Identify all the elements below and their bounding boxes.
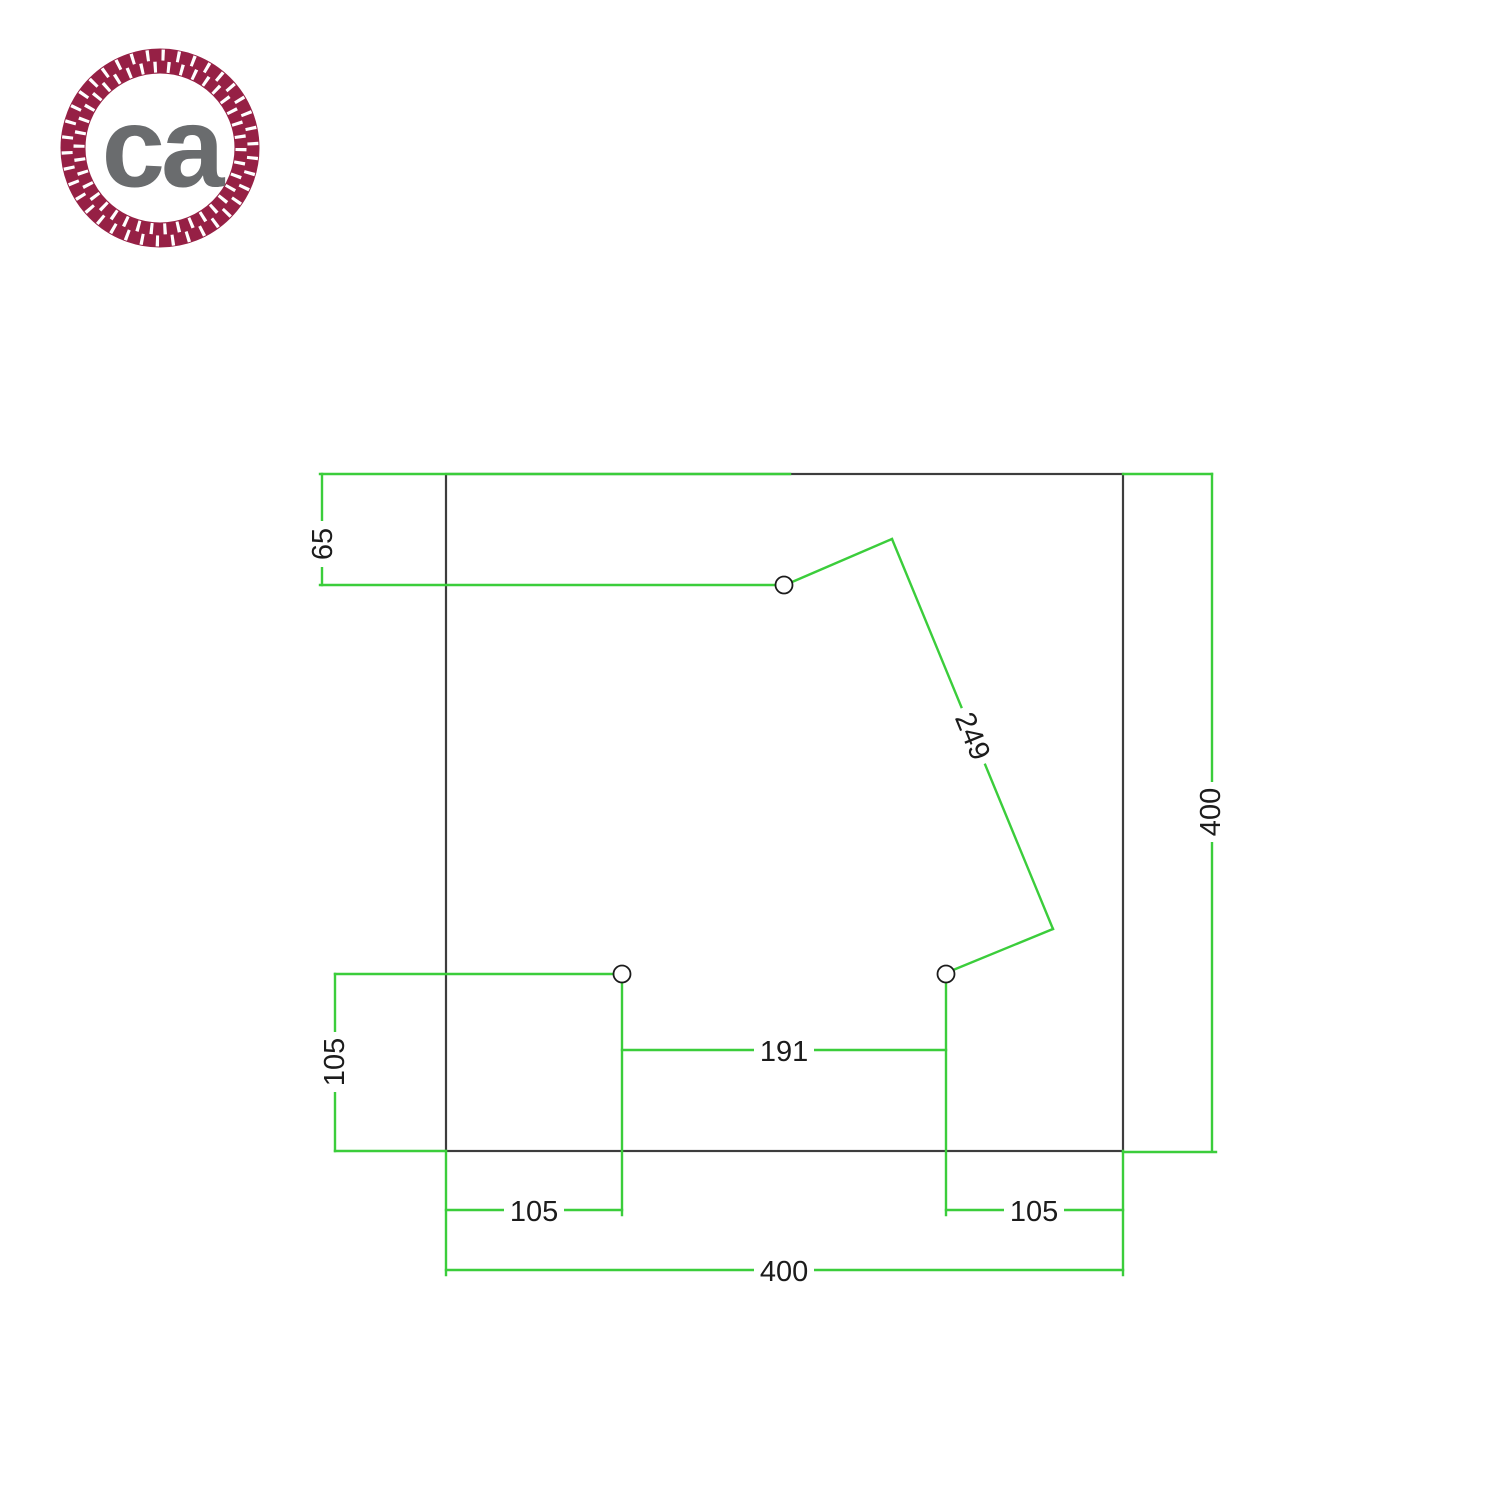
drawing-canvas: ca	[0, 0, 1500, 1500]
dimension-hole1-top-offset	[320, 474, 790, 585]
dimension-hole2-hole3-spacing	[622, 983, 946, 1215]
leader-line	[792, 539, 892, 582]
page: ca	[0, 0, 1500, 1500]
dimension-label: 400	[1195, 788, 1227, 836]
dimension-label-group: 65	[307, 521, 339, 567]
dimension-label-group: 191	[754, 1036, 814, 1068]
dimension-label-group: 105	[504, 1196, 564, 1228]
dimension-label-group: 105	[1004, 1196, 1064, 1228]
dimension-label: 400	[760, 1256, 808, 1288]
dimension-label: 65	[307, 528, 339, 560]
mounting-hole	[938, 966, 955, 983]
brand-logo-text: ca	[102, 85, 226, 212]
mounting-hole	[614, 966, 631, 983]
dimension-label-group: 400	[754, 1256, 814, 1288]
technical-drawing: 65 249 105 191 105 105	[307, 474, 1227, 1288]
dimension-label-group: 400	[1195, 782, 1227, 842]
dimension-hole1-corner-diagonal	[792, 539, 1053, 970]
dimension-label-group: 105	[319, 1032, 351, 1092]
dimension-label: 105	[319, 1038, 351, 1086]
dimension-label: 105	[510, 1196, 558, 1228]
mounting-hole	[776, 577, 793, 594]
leader-line	[953, 929, 1053, 970]
dimension-label: 105	[1010, 1196, 1058, 1228]
brand-logo: ca	[67, 55, 253, 241]
dimension-label-group: 249	[946, 703, 998, 771]
dimension-hole2-bottom-offset	[335, 974, 613, 1151]
dimension-label: 191	[760, 1036, 808, 1068]
